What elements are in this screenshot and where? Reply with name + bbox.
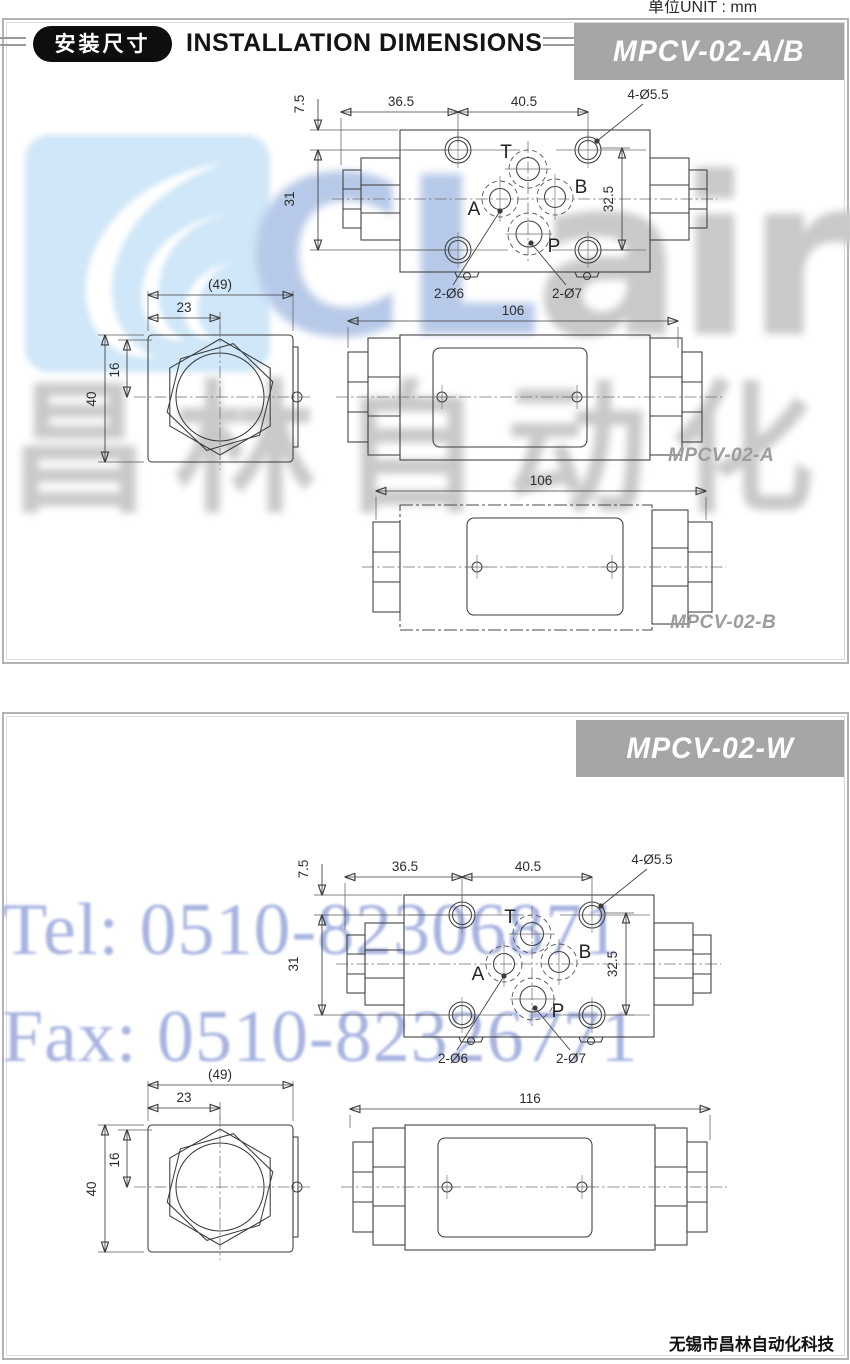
model-banner-ab-label: MPCV-02-A/B — [613, 35, 804, 69]
panel-mpcv-02-w: MPCV-02-W — [2, 712, 849, 1360]
catalog-page: CLair 昌林自动化 Tel: 0510-82306871 Fax: 0510… — [0, 0, 850, 1364]
panel-mpcv-02-ab: MPCV-02-A/B — [2, 18, 849, 664]
model-banner-w-label: MPCV-02-W — [626, 732, 793, 766]
header-rule-right — [543, 37, 575, 46]
unit-note: 单位UNIT : mm — [648, 0, 757, 17]
model-banner-ab: MPCV-02-A/B — [574, 23, 844, 80]
header-rule-left — [0, 37, 26, 46]
company-footer: 无锡市昌林自动化科技 — [669, 1331, 834, 1355]
model-banner-w: MPCV-02-W — [576, 720, 844, 777]
section-badge: 安装尺寸 — [33, 26, 172, 62]
page-title: INSTALLATION DIMENSIONS — [186, 29, 542, 58]
